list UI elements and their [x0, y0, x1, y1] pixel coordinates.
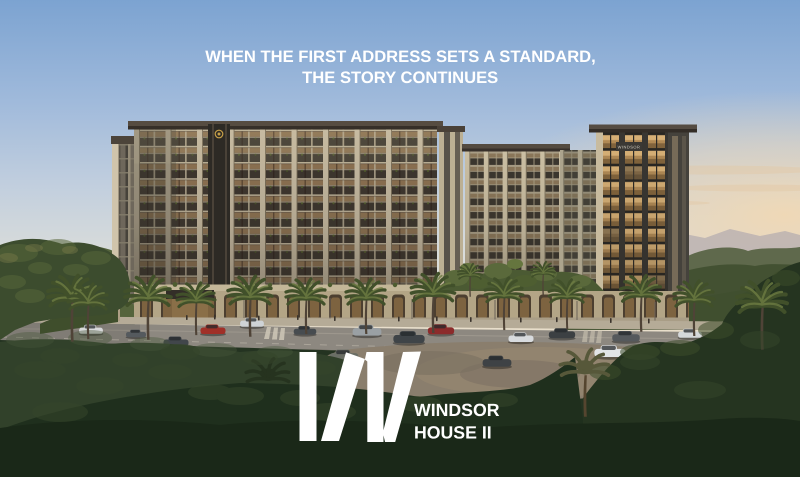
svg-text:THE STORY CONTINUES: THE STORY CONTINUES	[302, 68, 498, 87]
svg-text:HOUSE II: HOUSE II	[414, 423, 492, 443]
svg-text:WINDSOR: WINDSOR	[618, 145, 641, 150]
svg-text:WINDSOR: WINDSOR	[414, 400, 500, 420]
svg-text:WHEN THE FIRST ADDRESS SETS A: WHEN THE FIRST ADDRESS SETS A STANDARD,	[205, 47, 596, 66]
